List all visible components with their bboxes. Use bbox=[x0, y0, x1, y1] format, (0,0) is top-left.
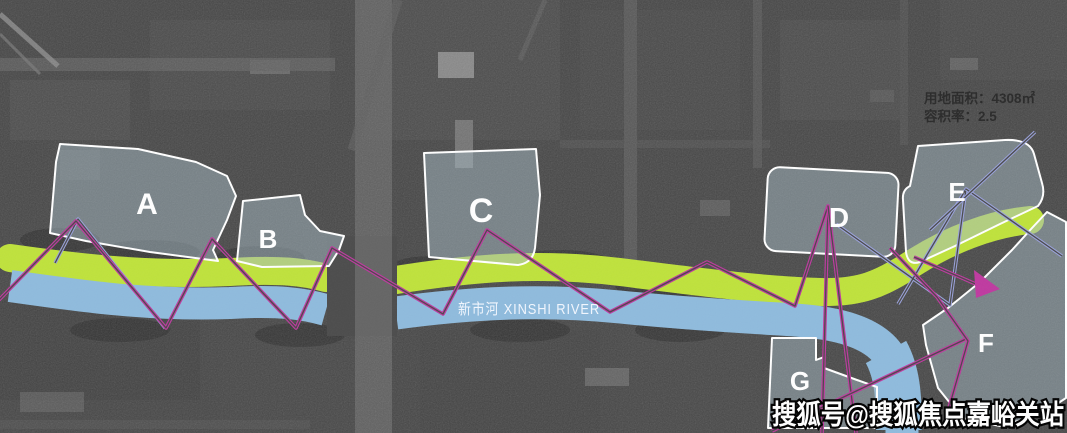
image-grain-overlay bbox=[0, 0, 1067, 433]
site-plan-map: A B C D E F G 新市河 XINSHI RIVER 用地面积：4308… bbox=[0, 0, 1067, 433]
plan-canvas: A B C D E F G 新市河 XINSHI RIVER 用地面积：4308… bbox=[0, 0, 1067, 433]
